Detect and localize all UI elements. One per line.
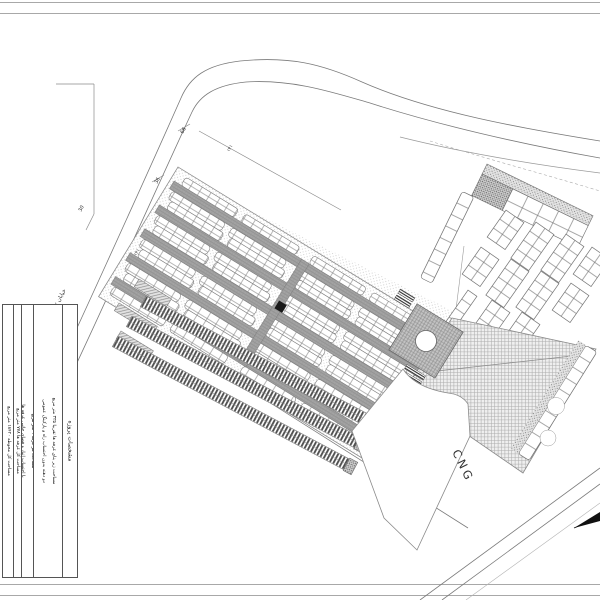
- table-row-booths-total: مساحت کل غرفه ها ۷۷۸ متر مربع: [13, 305, 21, 577]
- parking-row: [462, 247, 499, 287]
- table-row-land-area: مساحت زیر بنای غرفه ها تقریبا ۳۳۵ متر مر…: [33, 305, 62, 577]
- table-cell-text: مساحت زیر بنای غرفه ها تقریبا ۳۳۵ متر مر…: [48, 307, 58, 575]
- table-header-cell: مشخصات پروژه: [62, 305, 77, 577]
- drawing-sheet: CNG 66 36 30 ۱۴۱ ۱۴۱ خیابان ۲ مساحت کل م…: [0, 0, 600, 600]
- table-cell-text: مساحت کل غرفه ها ۷۷۸ متر مربع: [13, 307, 21, 575]
- table-row-booth-area: مساحت هر غرفه ۹ متر مربع با احتساب انبار…: [21, 305, 34, 577]
- dimension-label: 30: [77, 204, 85, 212]
- dimension-label: 36: [153, 176, 161, 184]
- parking-row: [552, 283, 589, 323]
- bottom-right-road: [420, 468, 600, 600]
- table-cell-text: با احتساب انبار و فضای جانبی غرفه ها: [21, 307, 28, 575]
- table-header-text: مشخصات پروژه: [64, 307, 77, 575]
- table-cell-text: مساحت کل محوطه ۱۸۴۲۰ متر مربع: [3, 307, 13, 575]
- table-cell-text: دو دهنه بدون احتساب راه و پارکینگ عمومی: [38, 307, 48, 575]
- road-median-line: [400, 137, 600, 173]
- dimension-label: 66: [179, 126, 187, 134]
- table-row-total-area: مساحت کل محوطه ۱۸۴۲۰ متر مربع: [3, 305, 13, 577]
- title-block-table: مساحت کل محوطه ۱۸۴۲۰ متر مربع مساحت کل غ…: [2, 304, 78, 578]
- edge-note: ۱۴۱: [226, 144, 234, 153]
- north-arrow: [574, 512, 600, 528]
- site-plan-canvas: CNG 66 36 30 ۱۴۱ ۱۴۱ خیابان ۲: [0, 0, 600, 600]
